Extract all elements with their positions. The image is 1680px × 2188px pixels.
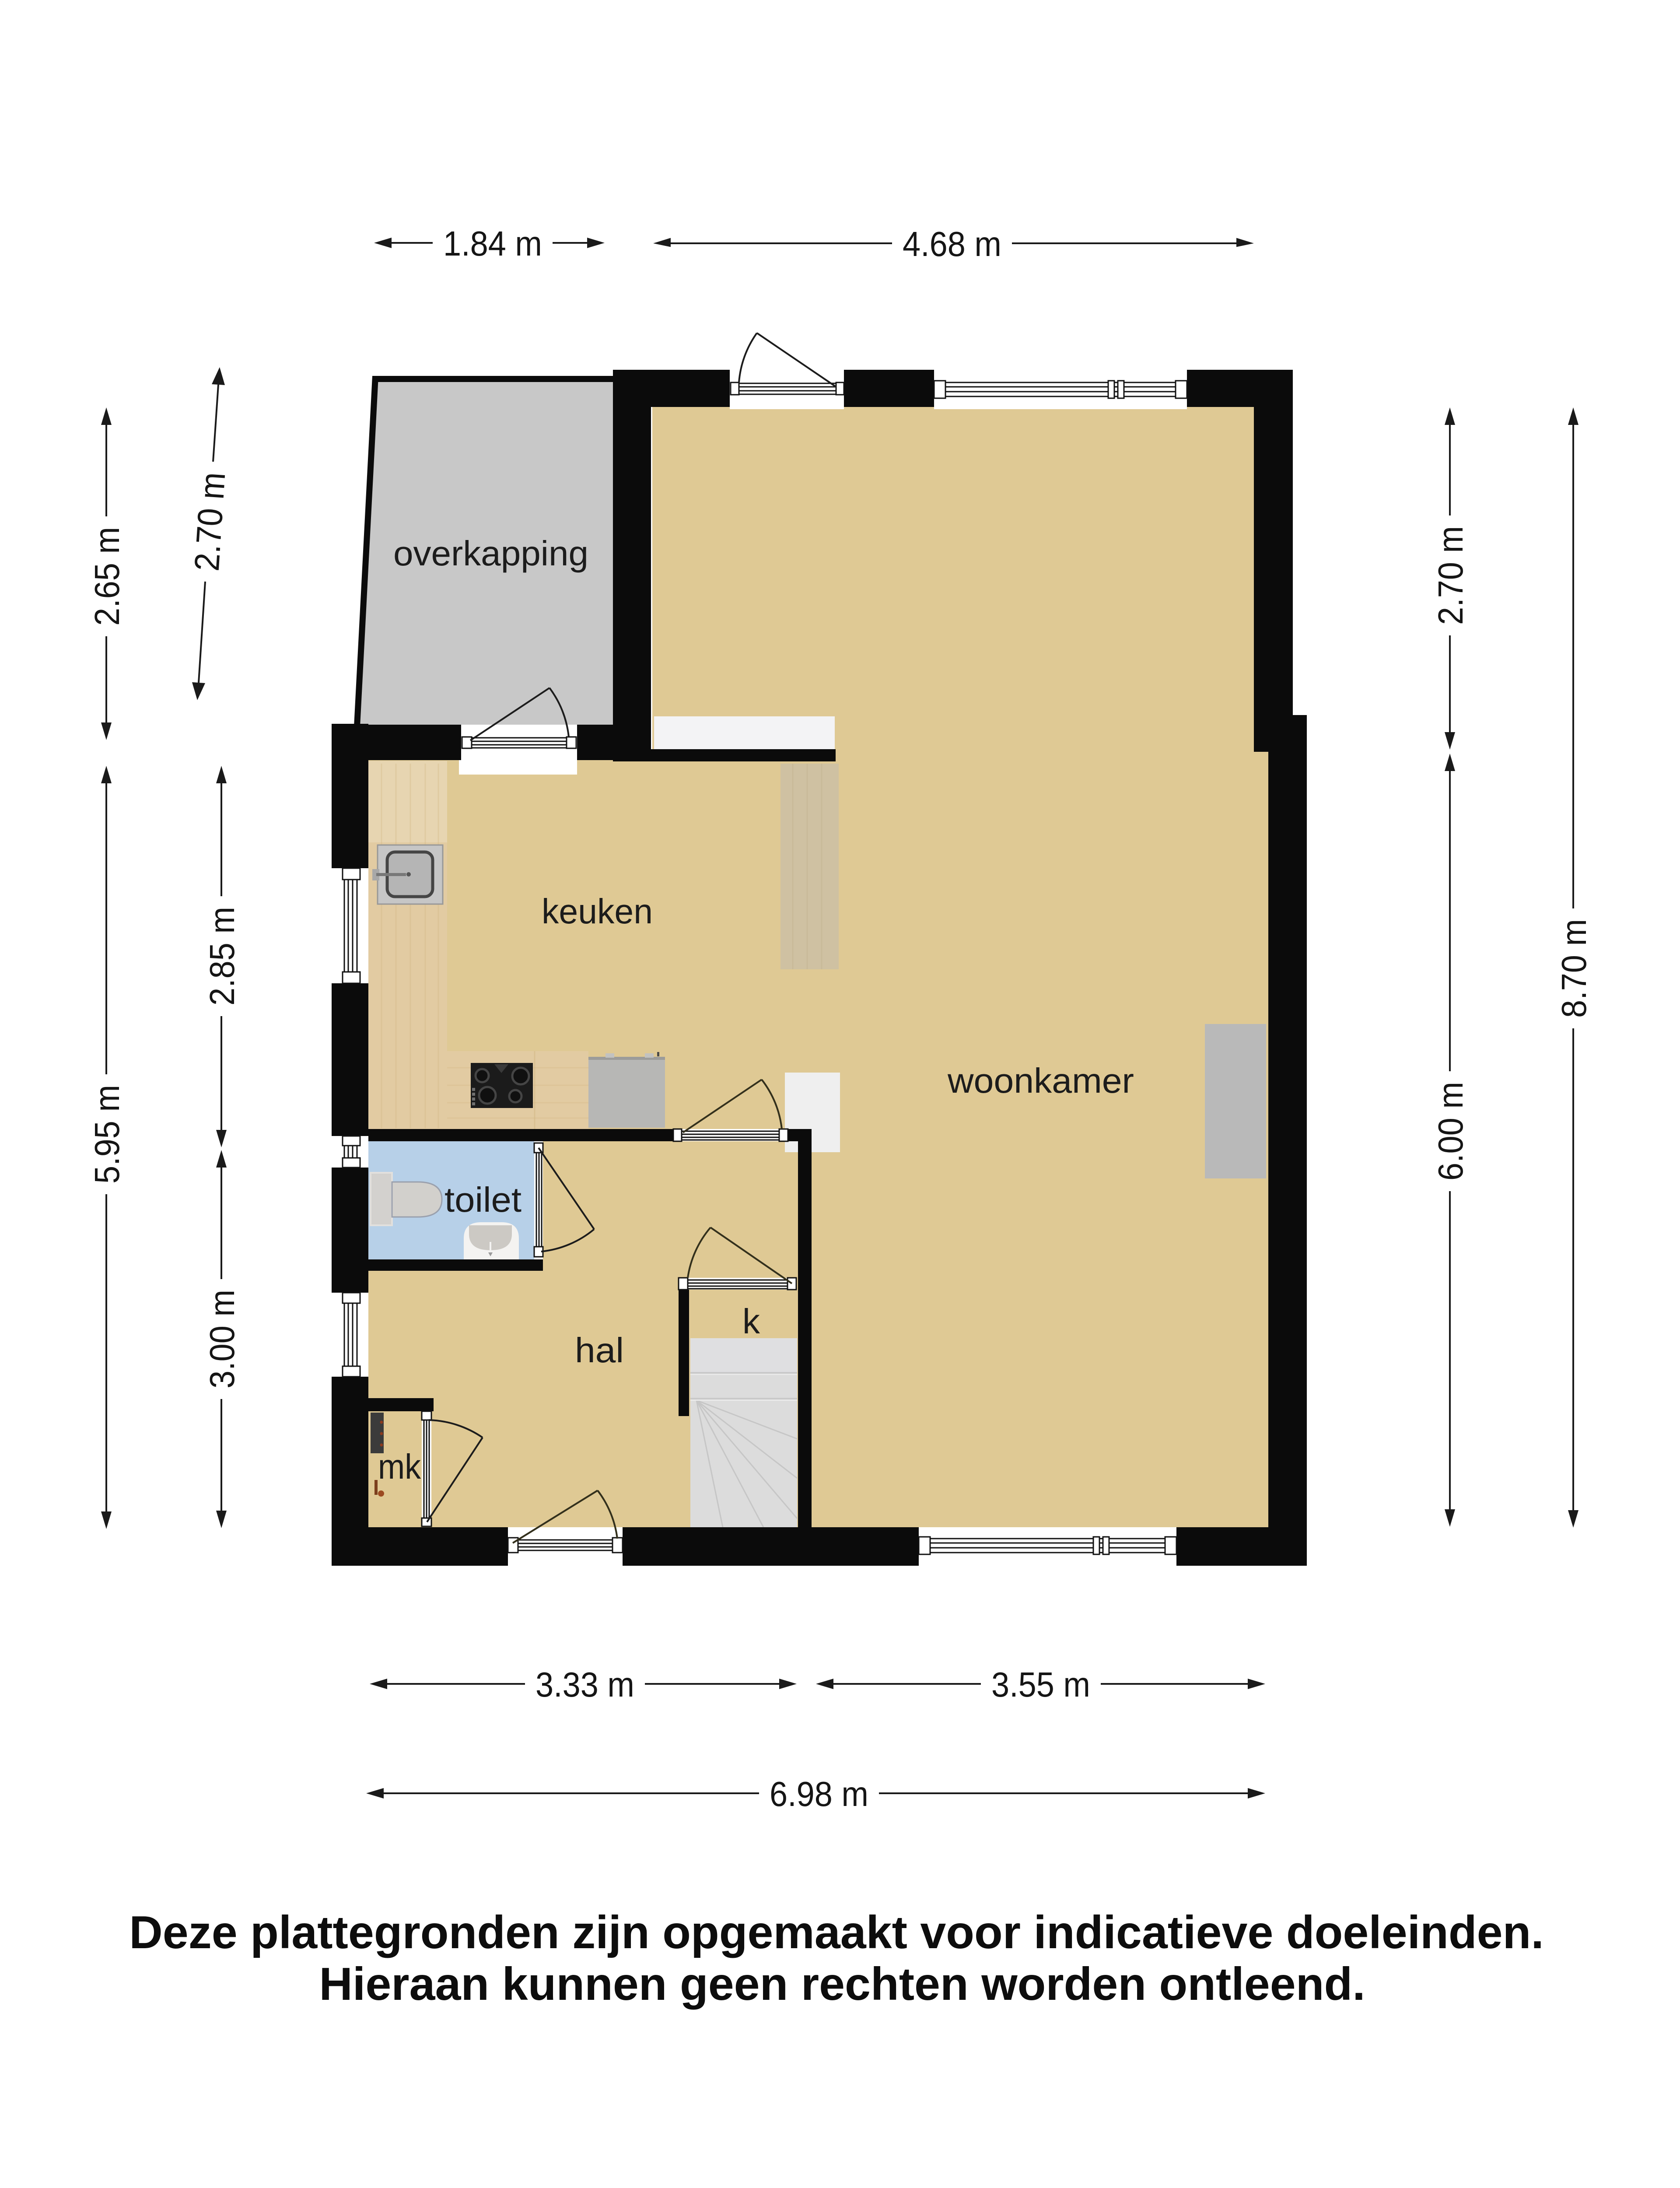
svg-text:2.70 m: 2.70 m: [1431, 526, 1470, 625]
svg-text:k: k: [742, 1302, 760, 1341]
svg-text:2.85 m: 2.85 m: [203, 907, 241, 1006]
svg-text:hal: hal: [575, 1331, 624, 1370]
svg-text:5.95 m: 5.95 m: [87, 1085, 126, 1184]
svg-text:overkapping: overkapping: [393, 534, 588, 573]
svg-text:2.65 m: 2.65 m: [87, 527, 126, 626]
svg-text:toilet: toilet: [444, 1180, 521, 1219]
svg-text:3.55 m: 3.55 m: [991, 1665, 1090, 1704]
svg-text:6.98 m: 6.98 m: [770, 1774, 868, 1813]
svg-text:8.70 m: 8.70 m: [1554, 919, 1593, 1018]
svg-text:Hieraan kunnen geen rechten wo: Hieraan kunnen geen rechten worden ontle…: [319, 1958, 1365, 2010]
svg-text:Deze plattegronden zijn opgema: Deze plattegronden zijn opgemaakt voor i…: [129, 1907, 1544, 1958]
svg-text:keuken: keuken: [542, 892, 653, 931]
svg-text:3.33 m: 3.33 m: [535, 1665, 634, 1704]
svg-text:woonkamer: woonkamer: [947, 1061, 1134, 1100]
svg-text:3.00 m: 3.00 m: [203, 1290, 241, 1389]
svg-text:4.68 m: 4.68 m: [903, 224, 1001, 263]
svg-text:2.70 m: 2.70 m: [187, 471, 233, 572]
svg-text:mk: mk: [378, 1447, 421, 1486]
svg-text:6.00 m: 6.00 m: [1431, 1082, 1470, 1181]
svg-text:1.84 m: 1.84 m: [443, 224, 542, 263]
